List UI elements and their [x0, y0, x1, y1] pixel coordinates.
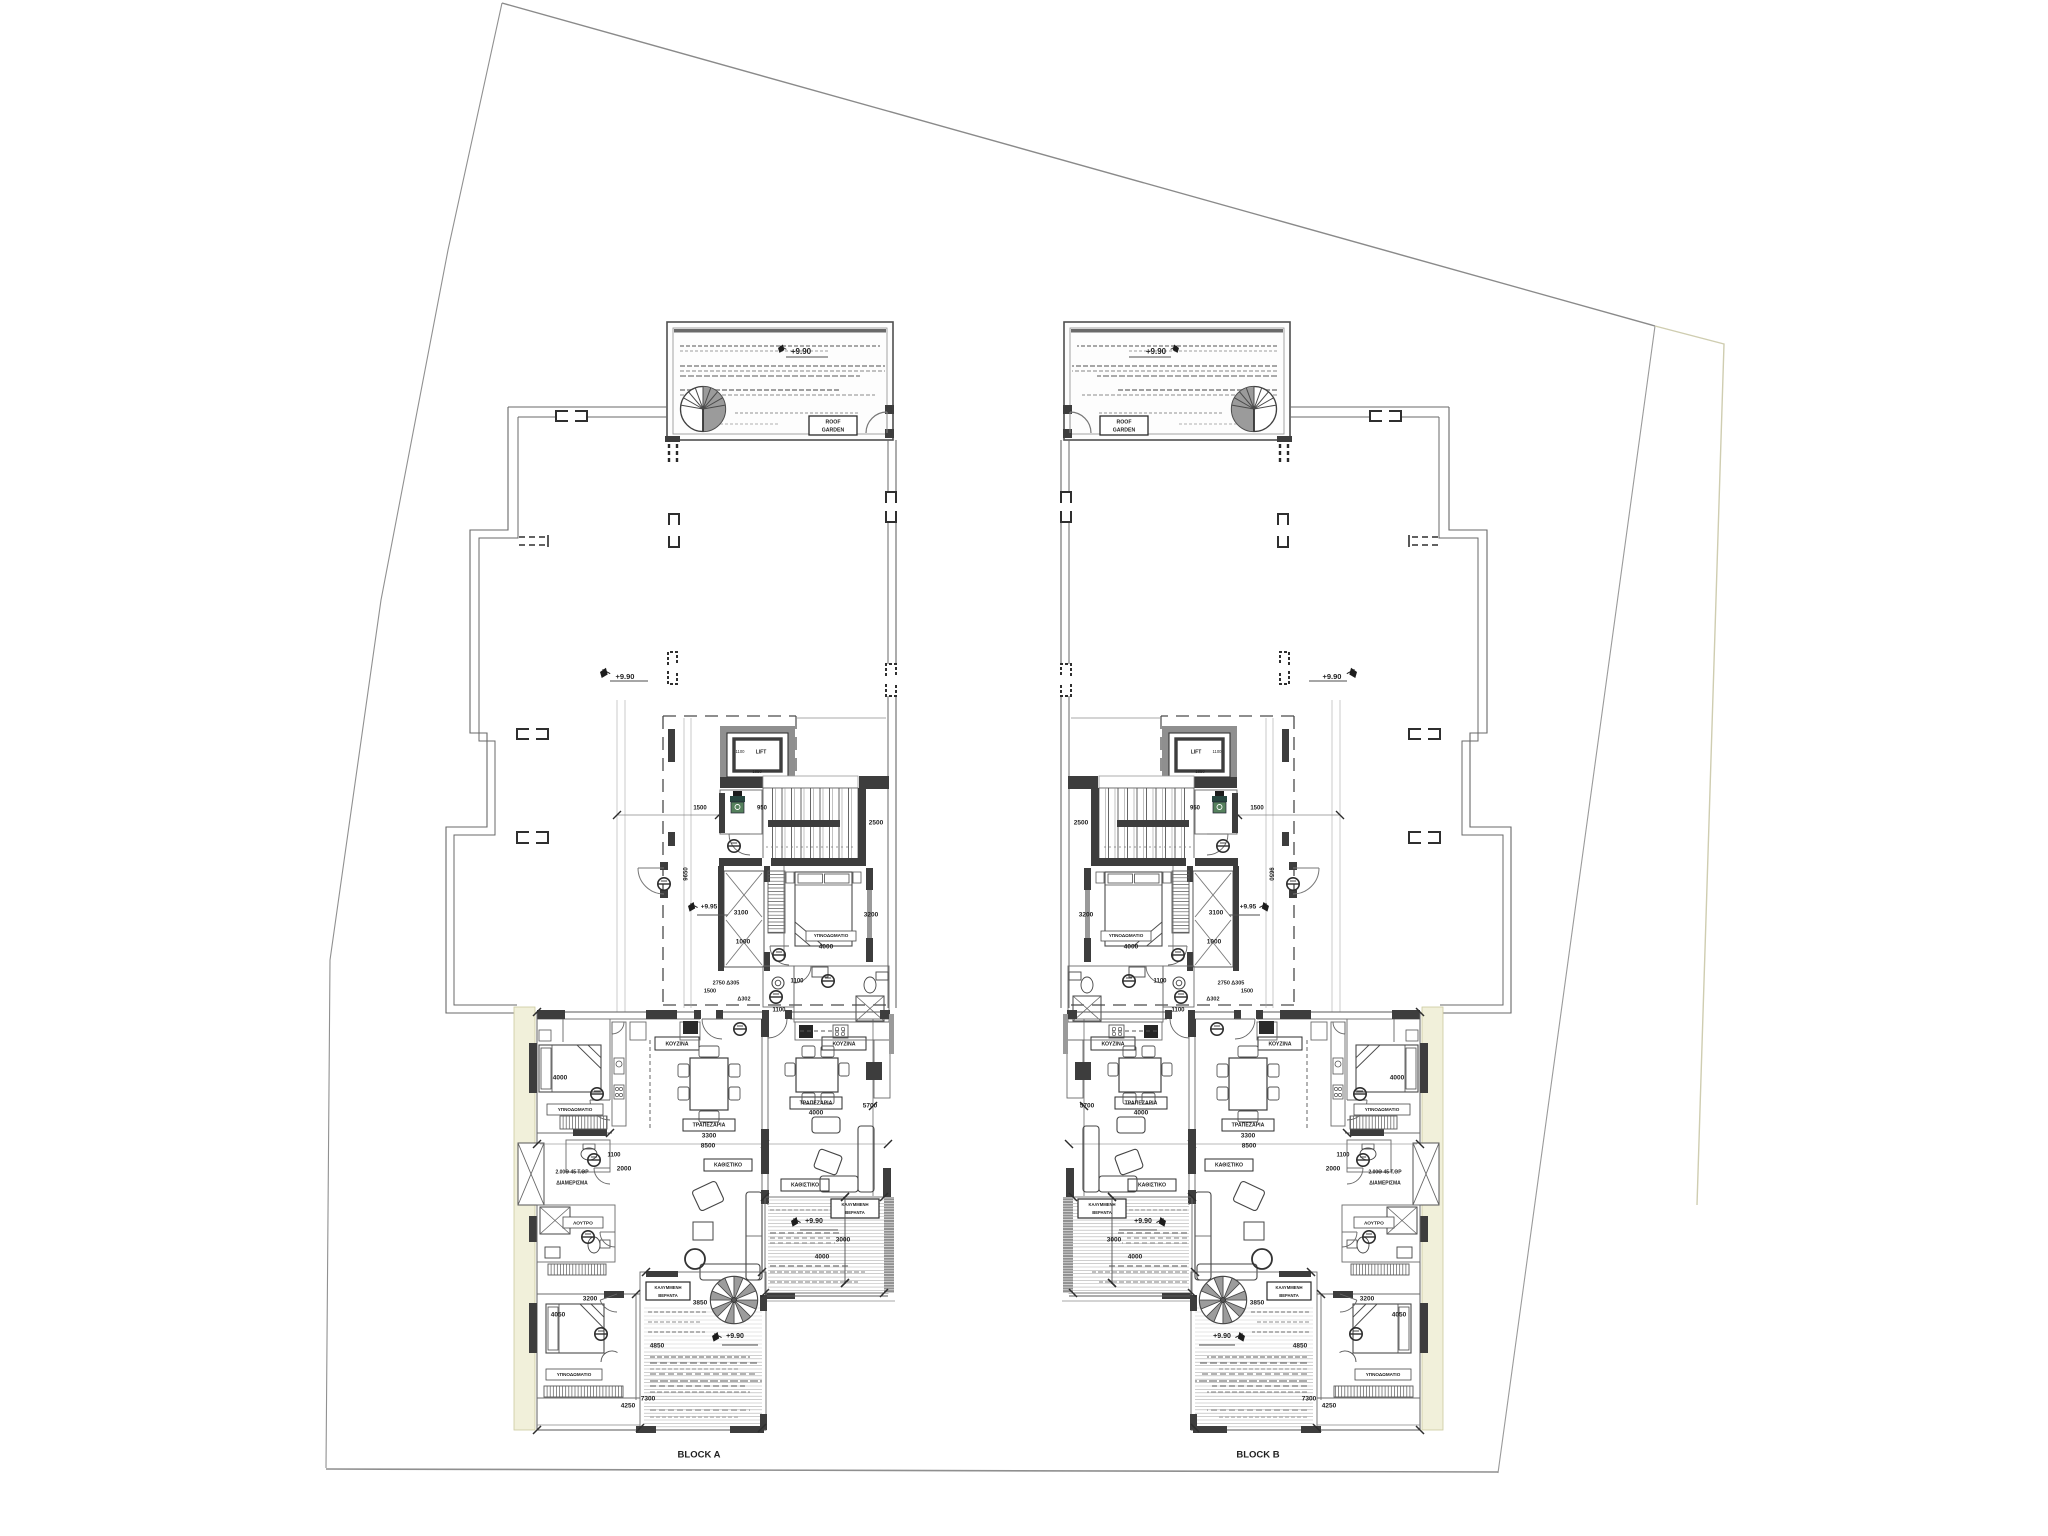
- svg-text:4000: 4000: [1134, 1110, 1149, 1117]
- svg-text:1100: 1100: [1153, 979, 1167, 985]
- svg-text:5700: 5700: [1080, 1103, 1095, 1110]
- svg-text:1000: 1000: [736, 939, 751, 946]
- svg-text:1100: 1100: [607, 1153, 621, 1159]
- svg-text:4850: 4850: [1293, 1343, 1308, 1350]
- svg-text:ΒΕΡΑΝΤΑ: ΒΕΡΑΝΤΑ: [658, 1293, 678, 1298]
- svg-text:+9.90: +9.90: [1323, 672, 1342, 681]
- svg-text:+9.90: +9.90: [616, 672, 635, 681]
- svg-text:+9.90: +9.90: [726, 1333, 744, 1340]
- svg-text:+9.90: +9.90: [791, 347, 812, 356]
- svg-text:3200: 3200: [864, 912, 879, 919]
- svg-text:+9.90: +9.90: [805, 1218, 823, 1225]
- svg-text:1850: 1850: [752, 769, 762, 774]
- svg-text:4000: 4000: [1124, 944, 1139, 951]
- svg-text:ΤΡΑΠΕΖΑΡΙΑ: ΤΡΑΠΕΖΑΡΙΑ: [1125, 1100, 1158, 1106]
- svg-text:+9.90: +9.90: [1134, 1218, 1152, 1225]
- svg-text:ΚΑΛΥΜΜΕΝΗ: ΚΑΛΥΜΜΕΝΗ: [1275, 1285, 1302, 1290]
- svg-text:ΥΠΝΟΔΩΜΑΤΙΟ: ΥΠΝΟΔΩΜΑΤΙΟ: [558, 1107, 593, 1112]
- svg-text:+9.90: +9.90: [1146, 347, 1167, 356]
- svg-text:3000: 3000: [836, 1237, 851, 1244]
- svg-text:1100: 1100: [772, 1008, 786, 1014]
- svg-text:ΛΟΥΤΡΟ: ΛΟΥΤΡΟ: [573, 1220, 593, 1226]
- svg-text:9650: 9650: [1267, 867, 1273, 881]
- svg-text:ΛΟΥΤΡΟ: ΛΟΥΤΡΟ: [1364, 1220, 1384, 1226]
- svg-text:ΚΑΛΥΜΜΕΝΗ: ΚΑΛΥΜΜΕΝΗ: [1088, 1202, 1115, 1207]
- svg-text:ΚΑΘΙΣΤΙΚΟ: ΚΑΘΙΣΤΙΚΟ: [1138, 1182, 1166, 1188]
- svg-text:ΚΑΛΥΜΜΕΝΗ: ΚΑΛΥΜΜΕΝΗ: [654, 1285, 681, 1290]
- svg-text:4850: 4850: [650, 1343, 665, 1350]
- svg-text:2500: 2500: [1074, 820, 1089, 827]
- svg-text:1850: 1850: [1195, 769, 1205, 774]
- svg-text:ΤΡΑΠΕΖΑΡΙΑ: ΤΡΑΠΕΖΑΡΙΑ: [693, 1122, 726, 1128]
- svg-text:3200: 3200: [1079, 912, 1094, 919]
- svg-text:4000: 4000: [815, 1254, 830, 1261]
- svg-text:3100: 3100: [1209, 910, 1224, 917]
- svg-text:ΚΟΥΖΙΝΑ: ΚΟΥΖΙΝΑ: [1102, 1041, 1125, 1047]
- svg-text:1000: 1000: [1207, 939, 1222, 946]
- svg-text:ΚΟΥΖΙΝΑ: ΚΟΥΖΙΝΑ: [833, 1041, 856, 1047]
- svg-text:ΚΟΥΖΙΝΑ: ΚΟΥΖΙΝΑ: [666, 1041, 689, 1047]
- svg-text:2000: 2000: [617, 1166, 632, 1173]
- svg-text:1500: 1500: [1241, 988, 1253, 994]
- svg-text:ΚΑΘΙΣΤΙΚΟ: ΚΑΘΙΣΤΙΚΟ: [1215, 1162, 1243, 1168]
- svg-text:4050: 4050: [551, 1312, 566, 1319]
- svg-text:3300: 3300: [1241, 1133, 1256, 1140]
- svg-text:7300: 7300: [1302, 1396, 1317, 1403]
- svg-text:1100: 1100: [790, 979, 804, 985]
- svg-text:ΒΕΡΑΝΤΑ: ΒΕΡΑΝΤΑ: [845, 1210, 865, 1215]
- svg-text:ROOF: ROOF: [1117, 419, 1132, 425]
- svg-text:2.00Θ 45 Τ.ΘΡ: 2.00Θ 45 Τ.ΘΡ: [555, 1169, 589, 1175]
- svg-text:ΥΠΝΟΔΩΜΑΤΙΟ: ΥΠΝΟΔΩΜΑΤΙΟ: [814, 933, 849, 938]
- svg-text:4000: 4000: [819, 944, 834, 951]
- svg-text:+9.95: +9.95: [1240, 904, 1257, 911]
- svg-text:GARDEN: GARDEN: [1113, 427, 1136, 433]
- svg-text:4250: 4250: [621, 1403, 636, 1410]
- svg-text:Δ302: Δ302: [737, 996, 750, 1002]
- svg-text:8500: 8500: [701, 1143, 716, 1150]
- svg-text:3300: 3300: [702, 1133, 717, 1140]
- svg-text:ΚΑΛΥΜΜΕΝΗ: ΚΑΛΥΜΜΕΝΗ: [841, 1202, 868, 1207]
- svg-text:ΔΙΑΜΕΡΙΣΜΑ: ΔΙΑΜΕΡΙΣΜΑ: [556, 1180, 588, 1186]
- svg-text:ΥΠΝΟΔΩΜΑΤΙΟ: ΥΠΝΟΔΩΜΑΤΙΟ: [557, 1372, 592, 1377]
- svg-text:ΚΟΥΖΙΝΑ: ΚΟΥΖΙΝΑ: [1269, 1041, 1292, 1047]
- svg-text:1100: 1100: [1212, 749, 1222, 754]
- svg-text:3200: 3200: [583, 1296, 598, 1303]
- svg-text:ΚΑΘΙΣΤΙΚΟ: ΚΑΘΙΣΤΙΚΟ: [791, 1182, 819, 1188]
- svg-text:1100: 1100: [1171, 1008, 1185, 1014]
- svg-text:950: 950: [1190, 806, 1201, 812]
- svg-text:BLOCK B: BLOCK B: [1236, 1450, 1279, 1461]
- svg-text:2.00Θ 45 Τ.ΘΡ: 2.00Θ 45 Τ.ΘΡ: [1368, 1169, 1402, 1175]
- svg-text:4250: 4250: [1322, 1403, 1337, 1410]
- svg-text:1100: 1100: [1336, 1153, 1350, 1159]
- svg-text:ΥΠΝΟΔΩΜΑΤΙΟ: ΥΠΝΟΔΩΜΑΤΙΟ: [1365, 1107, 1400, 1112]
- svg-text:ΤΡΑΠΕΖΑΡΙΑ: ΤΡΑΠΕΖΑΡΙΑ: [800, 1100, 833, 1106]
- svg-text:2750 Δ305: 2750 Δ305: [1218, 980, 1245, 986]
- svg-text:ΒΕΡΑΝΤΑ: ΒΕΡΑΝΤΑ: [1279, 1293, 1299, 1298]
- svg-text:8500: 8500: [1242, 1143, 1257, 1150]
- svg-text:1500: 1500: [704, 988, 716, 994]
- svg-text:3200: 3200: [1360, 1296, 1375, 1303]
- svg-text:4000: 4000: [1390, 1075, 1405, 1082]
- svg-text:3850: 3850: [1250, 1300, 1265, 1307]
- svg-text:9650: 9650: [684, 867, 690, 881]
- svg-text:5700: 5700: [863, 1103, 878, 1110]
- svg-text:4000: 4000: [809, 1110, 824, 1117]
- svg-text:LIFT: LIFT: [756, 749, 767, 755]
- svg-text:ΔΙΑΜΕΡΙΣΜΑ: ΔΙΑΜΕΡΙΣΜΑ: [1369, 1180, 1401, 1186]
- svg-text:Δ302: Δ302: [1206, 996, 1219, 1002]
- svg-text:ΥΠΝΟΔΩΜΑΤΙΟ: ΥΠΝΟΔΩΜΑΤΙΟ: [1109, 933, 1144, 938]
- svg-text:7300: 7300: [641, 1396, 656, 1403]
- svg-text:LIFT: LIFT: [1191, 749, 1202, 755]
- svg-text:ΒΕΡΑΝΤΑ: ΒΕΡΑΝΤΑ: [1092, 1210, 1112, 1215]
- svg-text:4050: 4050: [1392, 1312, 1407, 1319]
- svg-text:3100: 3100: [734, 910, 749, 917]
- svg-text:1500: 1500: [1250, 806, 1264, 812]
- svg-text:ΤΡΑΠΕΖΑΡΙΑ: ΤΡΑΠΕΖΑΡΙΑ: [1232, 1122, 1265, 1128]
- svg-text:1500: 1500: [693, 806, 707, 812]
- svg-text:+9.95: +9.95: [701, 904, 718, 911]
- svg-text:2500: 2500: [869, 820, 884, 827]
- svg-text:1100: 1100: [735, 749, 745, 754]
- svg-text:+9.90: +9.90: [1213, 1333, 1231, 1340]
- svg-text:950: 950: [757, 806, 768, 812]
- svg-text:ROOF: ROOF: [826, 419, 841, 425]
- svg-text:BLOCK A: BLOCK A: [678, 1450, 721, 1461]
- svg-text:ΚΑΘΙΣΤΙΚΟ: ΚΑΘΙΣΤΙΚΟ: [714, 1162, 742, 1168]
- svg-text:4000: 4000: [1128, 1254, 1143, 1261]
- svg-text:3000: 3000: [1107, 1237, 1122, 1244]
- svg-text:3850: 3850: [693, 1300, 708, 1307]
- svg-text:GARDEN: GARDEN: [822, 427, 845, 433]
- svg-text:2750 Δ305: 2750 Δ305: [713, 980, 740, 986]
- svg-text:ΥΠΝΟΔΩΜΑΤΙΟ: ΥΠΝΟΔΩΜΑΤΙΟ: [1366, 1372, 1401, 1377]
- svg-text:2000: 2000: [1326, 1166, 1341, 1173]
- svg-text:4000: 4000: [553, 1075, 568, 1082]
